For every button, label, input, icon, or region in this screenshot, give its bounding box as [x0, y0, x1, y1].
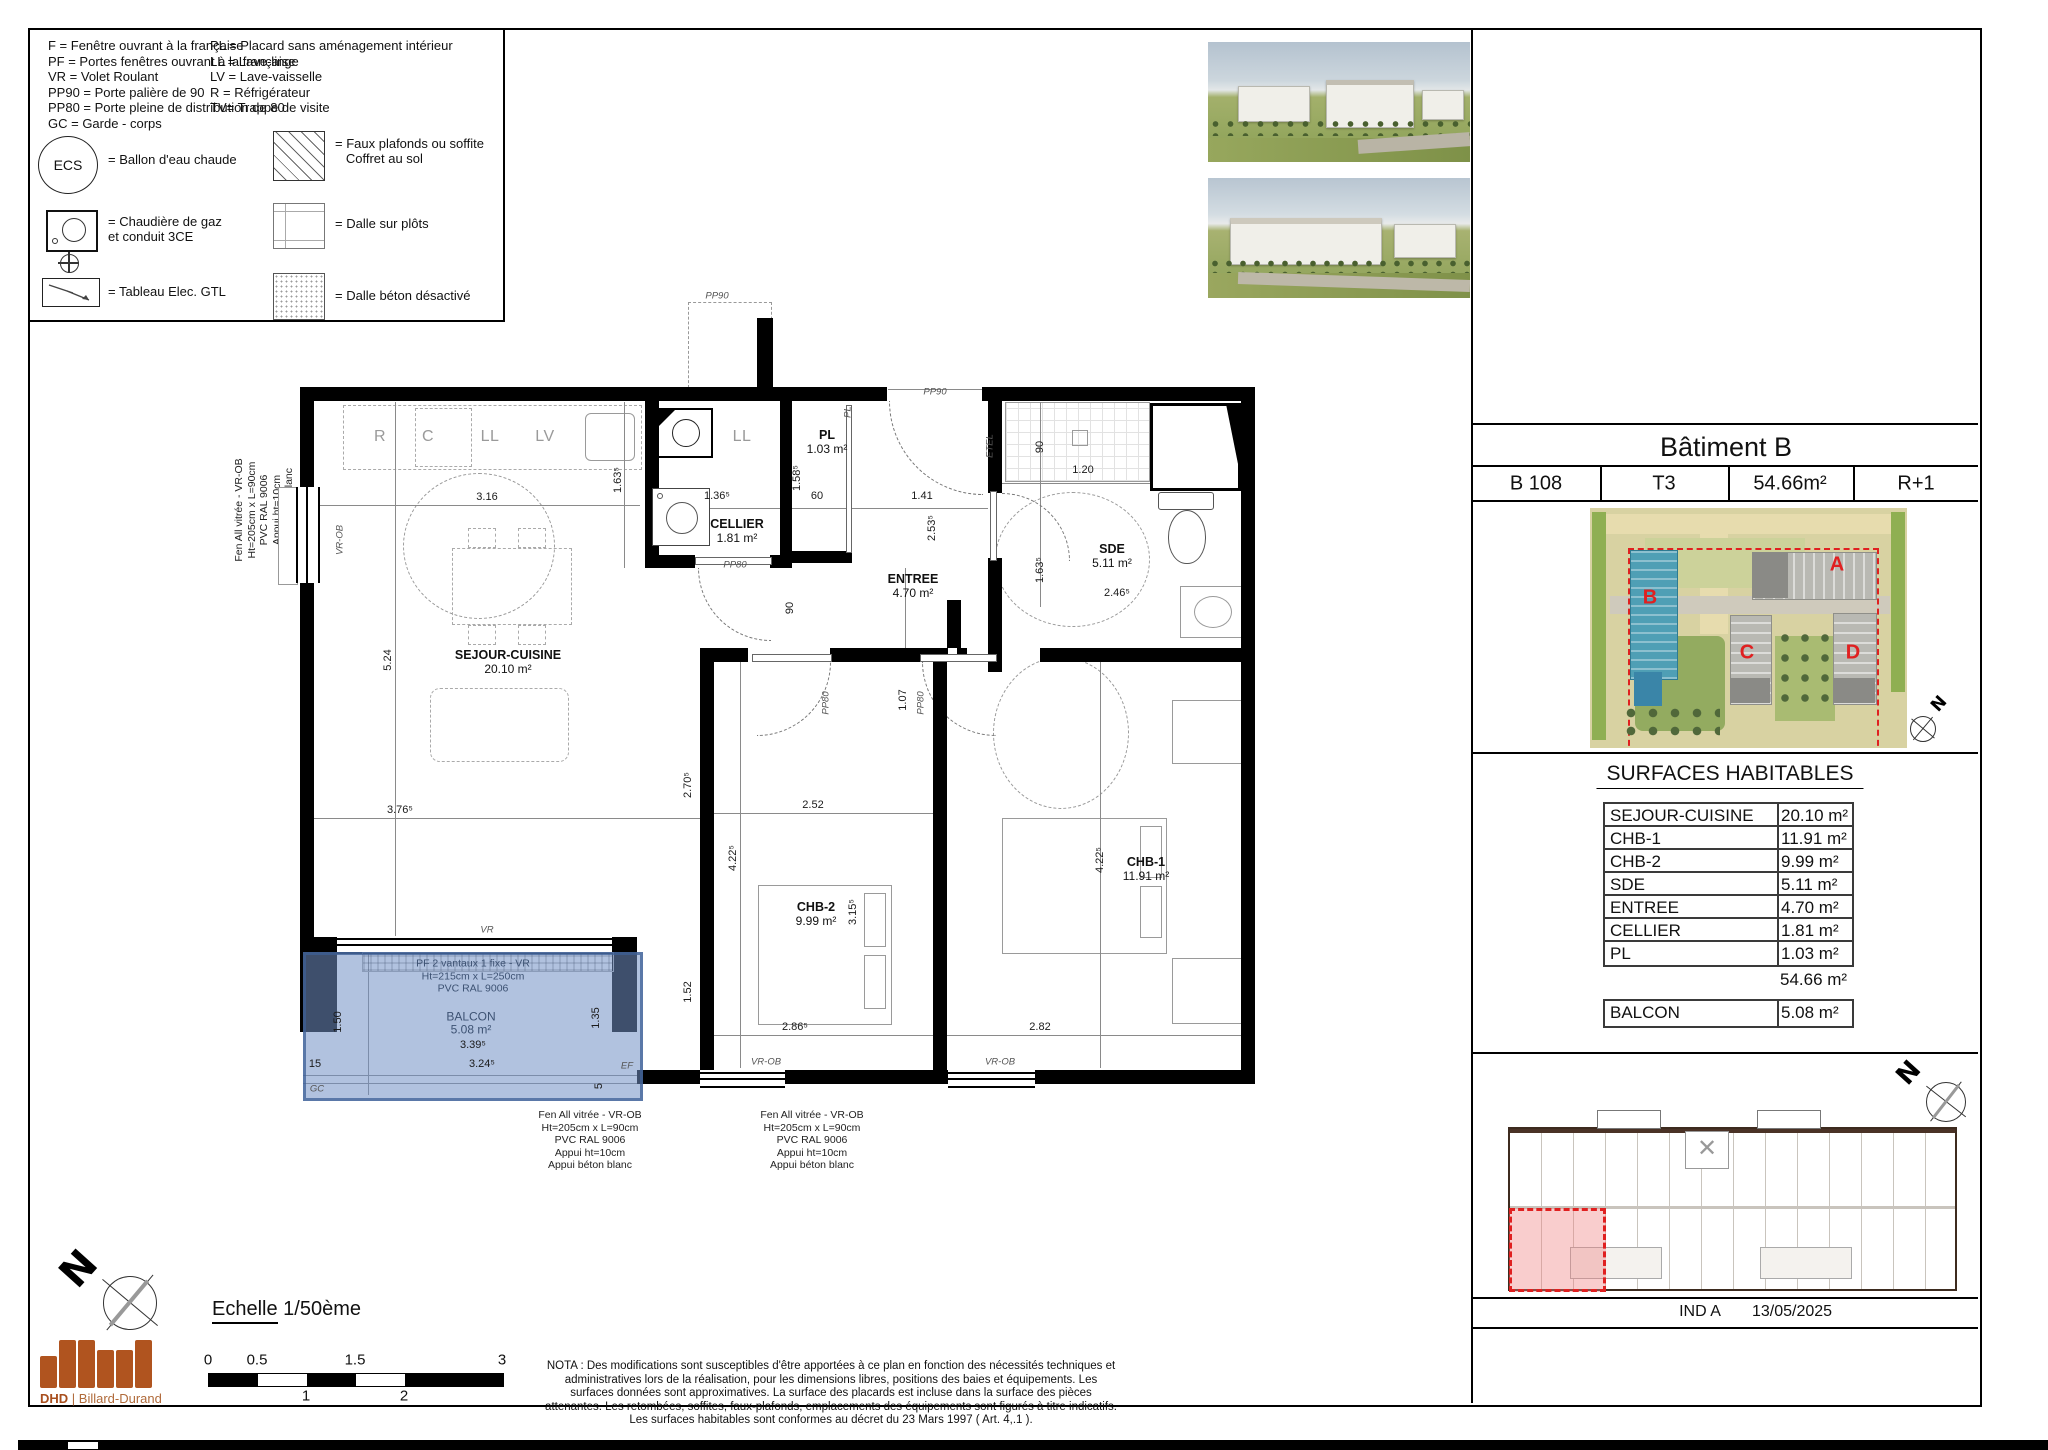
ind-row-bottom — [1473, 1327, 1978, 1329]
dimension-label: 60 — [811, 490, 823, 502]
scale-bar — [208, 1373, 504, 1387]
overview-section-rule — [1473, 1052, 1978, 1054]
dimension-label: 2.70⁵ — [682, 772, 694, 798]
overview-compass-icon — [1926, 1082, 1966, 1122]
wall-segment — [300, 583, 314, 937]
room-label-pl: PL1.03 m² — [807, 428, 848, 456]
dimension-label: 1.52 — [682, 981, 694, 1002]
window-note-chb2: Fen All vitrée - VR-OB Ht=205cm x L=90cm… — [538, 1109, 641, 1172]
dimension-label: 90 — [784, 602, 796, 614]
room-label-sde: SDE5.11 m² — [1092, 542, 1132, 570]
pillow — [864, 893, 886, 947]
surface-value: 11.91 m² — [1781, 829, 1847, 849]
unit-cell-3: R+1 — [1897, 473, 1934, 496]
toilet-bowl — [1168, 510, 1206, 564]
dimension-label: 1.20 — [1072, 464, 1093, 476]
balcony-window-note: PF 2 vantaux 1 fixe - VR Ht=215cm x L=25… — [416, 957, 530, 995]
dimension-label: 1.36⁵ — [704, 490, 730, 502]
panel-title-rule — [1473, 423, 1978, 425]
annotation-tag: VR-OB — [751, 1057, 781, 1068]
wall-segment — [1241, 387, 1255, 1084]
dimension-label: 2.86⁵ — [782, 1021, 808, 1033]
room-area: 4.70 m² — [888, 586, 939, 600]
appliance-label: LV — [535, 428, 554, 446]
dimension-label: 2.46⁵ — [1104, 587, 1130, 599]
dimension-label: 1.58⁵ — [791, 465, 803, 491]
site-letter-A: A — [1830, 554, 1844, 577]
panel-divider — [1471, 28, 1473, 1403]
dimension-line — [314, 505, 640, 506]
window-chb1 — [948, 1072, 1035, 1088]
room-name: SEJOUR-CUISINE — [455, 648, 561, 662]
wall-segment — [982, 387, 1255, 401]
chair — [468, 625, 496, 645]
dining-table — [452, 548, 572, 625]
wall-segment — [300, 387, 314, 487]
room-area: 11.91 m² — [1123, 869, 1169, 883]
room-label-cellier: CELLIER1.81 m² — [710, 517, 763, 545]
unit-row-top — [1473, 465, 1978, 467]
site-building-b — [1630, 550, 1678, 680]
surface-value: 1.81 m² — [1781, 921, 1839, 941]
surface-value: 4.70 m² — [1781, 898, 1839, 918]
dimension-label: 3.76⁵ — [387, 804, 413, 816]
room-name: CELLIER — [710, 517, 763, 531]
surfaces-row-pl: PL1.03 m² — [1603, 940, 1854, 967]
appliance-label: LL — [733, 428, 752, 446]
wall-segment — [1035, 1070, 1255, 1084]
surfaces-title: SURFACES HABITABLES — [1596, 762, 1863, 789]
scale-caption-value: 1/50ème — [283, 1298, 361, 1320]
wardrobe — [1172, 700, 1242, 764]
room-label-entree: ENTREE4.70 m² — [888, 572, 939, 600]
washing-machine — [652, 488, 710, 546]
sofa — [430, 688, 569, 762]
dimension-label: 1.07 — [897, 689, 909, 710]
site-compass-icon — [1910, 716, 1936, 742]
render-photo-1 — [1208, 42, 1470, 162]
surface-label: CHB-1 — [1610, 829, 1661, 849]
dimension-label: 5.24 — [382, 649, 394, 670]
room-label-chb-1: CHB-111.91 m² — [1123, 855, 1169, 883]
dimension-label: 3.24⁵ — [469, 1058, 495, 1070]
unit-cell-1: T3 — [1652, 473, 1675, 496]
annotation-tag: PP90 — [705, 291, 728, 302]
window-chb2 — [700, 1072, 785, 1088]
scale-tick-top: 1.5 — [345, 1352, 366, 1369]
balcon-row-label: BALCON — [1610, 1003, 1680, 1023]
room-area: 20.10 m² — [455, 662, 561, 676]
unit-row-bottom — [1473, 500, 1978, 502]
shower-drain — [1072, 430, 1088, 446]
surface-label: ENTREE — [1610, 898, 1679, 918]
surfaces-section-rule — [1473, 752, 1978, 754]
surface-value: 5.11 m² — [1781, 875, 1837, 895]
site-plan — [1590, 508, 1907, 748]
wall-segment — [645, 555, 695, 568]
unit-row-div3 — [1853, 465, 1855, 502]
render-photo-2 — [1208, 178, 1470, 298]
chair — [518, 625, 546, 645]
dimension-label: 3.15⁵ — [847, 899, 859, 925]
logo-name: Billard-Durand — [79, 1391, 162, 1406]
scale-tick-bottom: 2 — [400, 1388, 408, 1405]
surfaces-total: 54.66 m² — [1780, 970, 1847, 990]
annotation-tag: PP80 — [916, 691, 927, 714]
door-leaf — [990, 491, 997, 561]
dimension-label: 1.63⁵ — [612, 467, 624, 493]
scale-tick-top: 0.5 — [247, 1352, 268, 1369]
ind-date: 13/05/2025 — [1752, 1303, 1832, 1321]
overview-highlighted-unit — [1509, 1208, 1606, 1292]
scale-tick-top: 3 — [498, 1352, 506, 1369]
room-name: CHB-1 — [1123, 855, 1169, 869]
dimension-label: 1.41 — [911, 490, 932, 502]
annotation-tag: PP90 — [923, 387, 946, 398]
door-arc-entry — [889, 401, 983, 495]
chair — [468, 528, 496, 548]
scale-caption-label: Echelle — [212, 1298, 278, 1324]
dimension-label: 2.52 — [802, 799, 823, 811]
toilet-tank — [1158, 492, 1214, 510]
unit-row-div1 — [1600, 465, 1602, 502]
room-name: PL — [807, 428, 848, 442]
boiler-unit — [657, 408, 713, 458]
annotation-tag: PL — [843, 406, 854, 418]
dimension-label: 2.82 — [1029, 1021, 1050, 1033]
balcony-area-value: 5.08 m² — [451, 1022, 492, 1036]
surfaces-title-text: SURFACES HABITABLES — [1606, 762, 1853, 785]
balcon-row: BALCON 5.08 m² — [1603, 999, 1854, 1028]
dimension-label: 4.22⁵ — [727, 845, 739, 871]
unit-row-div2 — [1728, 465, 1730, 502]
dimension-label: 2.53⁵ — [926, 515, 938, 541]
dimension-label: 3.16 — [476, 491, 497, 503]
surface-label: CELLIER — [1610, 921, 1681, 941]
wall-segment — [933, 662, 947, 1070]
main-compass-icon — [103, 1276, 157, 1330]
door-leaf — [920, 654, 997, 662]
site-letter-C: C — [1740, 642, 1754, 665]
annotation-tag: VR-OB — [985, 1057, 1015, 1068]
turning-circle-dashed — [993, 657, 1129, 809]
dimension-line — [740, 662, 741, 1068]
wall-segment — [637, 1070, 700, 1084]
room-area: 1.81 m² — [710, 531, 763, 545]
annotation-tag: PP80 — [821, 691, 832, 714]
appliance-label: R — [374, 428, 386, 446]
wall-segment — [757, 318, 773, 387]
dimension-label: 15 — [309, 1058, 321, 1070]
surface-label: CHB-2 — [1610, 852, 1661, 872]
room-name: SDE — [1092, 542, 1132, 556]
ind-label: IND A — [1679, 1303, 1721, 1321]
surface-value: 20.10 m² — [1781, 806, 1848, 826]
vanity-basin — [1194, 596, 1232, 628]
dimension-line — [395, 402, 396, 936]
dimension-line — [947, 1035, 1241, 1036]
surface-value: 9.99 m² — [1781, 852, 1839, 872]
door-leaf — [752, 654, 832, 662]
duct-shaft — [1150, 403, 1241, 491]
building-title: Bâtiment B — [1652, 432, 1800, 467]
annotation-tag: VR-OB — [335, 525, 346, 555]
plan-sheet: F = Fenêtre ouvrant à la française PF = … — [0, 0, 2048, 1450]
site-letter-D: D — [1846, 642, 1860, 665]
chair — [518, 528, 546, 548]
dimension-line — [700, 813, 933, 814]
wall-segment — [947, 600, 961, 648]
dimension-line — [624, 402, 625, 568]
room-area: 1.03 m² — [807, 442, 848, 456]
dhd-logo: DHD | Billard-Durand — [40, 1336, 160, 1406]
surface-value: 1.03 m² — [1781, 944, 1839, 964]
room-label-chb-2: CHB-29.99 m² — [796, 900, 837, 928]
scale-tick-bottom: 1 — [302, 1388, 310, 1405]
dimension-line — [314, 818, 700, 819]
logo-brand: DHD — [40, 1391, 68, 1406]
room-area: 5.11 m² — [1092, 556, 1132, 570]
wall-segment — [700, 648, 714, 1070]
annotation-tag: EF — [621, 1061, 633, 1072]
dimension-label: 3.39⁵ — [460, 1039, 486, 1051]
window-left — [296, 487, 320, 583]
unit-cell-0: B 108 — [1510, 473, 1562, 496]
nota-text: NOTA : Des modifications sont susceptibl… — [545, 1360, 1117, 1428]
wall-segment — [785, 1070, 948, 1084]
dimension-label: 5 — [593, 1083, 605, 1089]
overview-balcony-1 — [1597, 1110, 1661, 1129]
dimension-label: 90 — [1034, 441, 1046, 453]
annotation-tag: VR — [480, 925, 493, 936]
unit-cell-2: 54.66m² — [1753, 473, 1826, 496]
balcony-room-label: BALCON 5.08 m² — [446, 1011, 495, 1036]
appliance-label: C — [422, 428, 434, 446]
dimension-label: 4.22⁵ — [1094, 847, 1106, 873]
wall-segment — [300, 387, 887, 401]
wall-segment — [780, 551, 852, 563]
appliance-label: LL — [481, 428, 500, 446]
building-title-text: Bâtiment B — [1660, 432, 1792, 462]
surface-label: SDE — [1610, 875, 1645, 895]
wall-segment — [1040, 648, 1255, 662]
room-label-sejour-cuisine: SEJOUR-CUISINE20.10 m² — [455, 648, 561, 676]
window-sill — [278, 487, 298, 585]
wardrobe — [1172, 958, 1242, 1024]
pillow — [864, 955, 886, 1009]
ind-row-top — [1473, 1297, 1978, 1299]
annotation-tag: GC — [310, 1084, 324, 1095]
annotation-tag: ETEL — [985, 434, 996, 458]
room-area: 9.99 m² — [796, 914, 837, 928]
window-note-chb1: Fen All vitrée - VR-OB Ht=205cm x L=90cm… — [760, 1109, 863, 1172]
overview-balcony-2 — [1757, 1110, 1821, 1129]
dimension-label: 1.35 — [590, 1007, 602, 1028]
kitchen-sink — [585, 413, 635, 461]
scale-tick-top: 0 — [204, 1352, 212, 1369]
balcon-row-value: 5.08 m² — [1781, 1003, 1839, 1023]
dimension-line — [700, 1035, 933, 1036]
dimension-label: 1.63⁵ — [1034, 557, 1046, 583]
dimension-label: 1.50 — [332, 1011, 344, 1032]
next-sheet-edge — [18, 1440, 2048, 1450]
pillow — [1140, 886, 1162, 938]
room-name: CHB-2 — [796, 900, 837, 914]
scale-caption: Echelle 1/50ème — [212, 1298, 361, 1321]
door-arc-cellier — [698, 568, 771, 641]
room-name: ENTREE — [888, 572, 939, 586]
site-letter-B: B — [1643, 587, 1657, 610]
surface-label: SEJOUR-CUISINE — [1610, 806, 1754, 826]
surface-label: PL — [1610, 944, 1631, 964]
annotation-tag: PP80 — [723, 560, 746, 571]
